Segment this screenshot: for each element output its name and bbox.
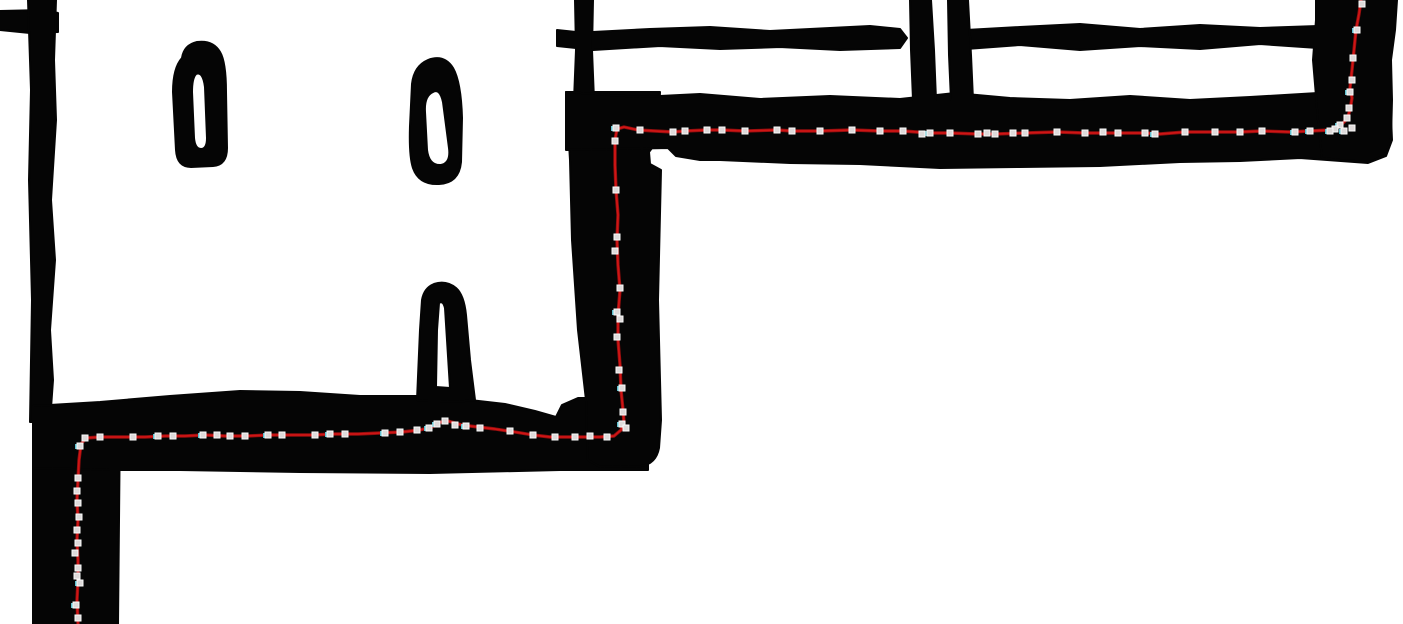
pillar-arch [417,283,475,402]
waypoint-marker[interactable] [1010,130,1016,136]
waypoint-marker[interactable] [463,423,469,429]
waypoint-marker[interactable] [617,316,623,322]
waypoint-marker[interactable] [227,433,233,439]
pillar-teardrop-1 [173,42,227,167]
waypoint-marker[interactable] [82,435,88,441]
waypoint-marker[interactable] [414,427,420,433]
waypoint-marker[interactable] [1327,128,1333,134]
pillar-teardrop-2 [410,58,462,184]
waypoint-marker[interactable] [97,434,103,440]
waypoint-marker[interactable] [312,432,318,438]
waypoint-marker[interactable] [613,125,619,131]
waypoint-marker[interactable] [242,433,248,439]
waypoint-marker[interactable] [342,431,348,437]
waypoint-marker[interactable] [130,434,136,440]
waypoint-marker[interactable] [617,285,623,291]
waypoint-marker[interactable] [1212,129,1218,135]
waypoint-marker[interactable] [434,421,440,427]
waypoint-marker[interactable] [984,130,990,136]
waypoint-marker[interactable] [587,433,593,439]
waypoint-marker[interactable] [74,488,80,494]
waypoint-marker[interactable] [1349,77,1355,83]
waypoint-marker[interactable] [72,550,78,556]
waypoint-marker[interactable] [73,602,79,608]
waypoint-marker[interactable] [849,127,855,133]
waypoint-marker[interactable] [670,129,676,135]
waypoint-marker[interactable] [170,433,176,439]
waypoint-marker[interactable] [452,422,458,428]
waypoint-marker[interactable] [1307,128,1313,134]
waypoint-marker[interactable] [279,432,285,438]
waypoint-marker[interactable] [1082,130,1088,136]
floorplan-sketch [0,0,1403,624]
waypoint-marker[interactable] [947,130,953,136]
wall-left-vertical [28,0,56,422]
wall-divider-b [948,0,973,100]
waypoint-marker[interactable] [623,425,629,431]
waypoint-marker[interactable] [900,128,906,134]
waypoint-marker[interactable] [75,540,81,546]
waypoint-marker[interactable] [975,131,981,137]
waypoint-marker[interactable] [1142,130,1148,136]
waypoint-marker[interactable] [75,500,81,506]
waypoint-marker[interactable] [507,428,513,434]
waypoint-marker[interactable] [1152,131,1158,137]
waypoint-marker[interactable] [74,573,80,579]
waypoint-marker[interactable] [1182,129,1188,135]
waypoint-marker[interactable] [619,385,625,391]
waypoint-marker[interactable] [75,475,81,481]
wall-room-stroke-left [593,26,907,50]
waypoint-marker[interactable] [604,434,610,440]
waypoint-marker[interactable] [1350,55,1356,61]
waypoint-marker[interactable] [789,128,795,134]
wall-central-top-stroke [574,0,594,100]
waypoint-marker[interactable] [1354,27,1360,33]
waypoint-marker[interactable] [614,234,620,240]
route-path [77,0,1361,624]
waypoint-marker[interactable] [1237,129,1243,135]
waypoint-marker[interactable] [919,131,925,137]
waypoint-marker[interactable] [75,615,81,621]
waypoint-marker[interactable] [1349,125,1355,131]
waypoint-marker[interactable] [74,527,80,533]
waypoint-marker[interactable] [77,443,83,449]
waypoint-marker[interactable] [572,434,578,440]
waypoint-marker[interactable] [1347,89,1353,95]
waypoint-marker[interactable] [75,565,81,571]
waypoint-marker[interactable] [76,514,82,520]
waypoint-marker[interactable] [616,367,622,373]
waypoint-marker[interactable] [719,127,725,133]
waypoint-marker[interactable] [1115,130,1121,136]
waypoint-marker[interactable] [397,429,403,435]
waypoint-marker[interactable] [426,425,432,431]
waypoint-marker[interactable] [612,138,618,144]
waypoint-marker[interactable] [552,434,558,440]
waypoint-marker[interactable] [1346,105,1352,111]
wall-lower-corridor [33,391,648,473]
waypoint-marker[interactable] [613,187,619,193]
waypoint-marker[interactable] [774,127,780,133]
waypoint-marker[interactable] [530,432,536,438]
waypoint-marker[interactable] [382,430,388,436]
waypoint-marker[interactable] [1359,1,1365,7]
waypoint-marker[interactable] [877,128,883,134]
waypoint-marker[interactable] [614,334,620,340]
waypoint-marker[interactable] [682,128,688,134]
wall-room-stroke-right [966,24,1318,50]
waypoint-marker[interactable] [1341,128,1347,134]
waypoint-marker[interactable] [327,431,333,437]
waypoint-marker[interactable] [704,127,710,133]
wall-divider-a [910,0,936,100]
waypoint-marker[interactable] [992,131,998,137]
waypoint-marker[interactable] [1292,129,1298,135]
waypoint-marker[interactable] [927,130,933,136]
waypoint-marker[interactable] [1054,129,1060,135]
waypoint-marker[interactable] [1259,128,1265,134]
waypoint-marker[interactable] [742,128,748,134]
waypoint-marker[interactable] [620,409,626,415]
waypoint-marker[interactable] [77,580,83,586]
waypoint-marker[interactable] [1344,115,1350,121]
waypoint-marker[interactable] [442,418,448,424]
floorplan-svg [0,0,1403,624]
waypoint-marker[interactable] [1022,130,1028,136]
waypoint-marker[interactable] [155,433,161,439]
waypoint-marker[interactable] [200,432,206,438]
waypoint-marker[interactable] [637,127,643,133]
waypoint-marker[interactable] [817,128,823,134]
waypoint-marker[interactable] [1100,129,1106,135]
waypoint-marker[interactable] [477,425,483,431]
waypoint-marker[interactable] [265,432,271,438]
route-path-underlay [77,0,1361,624]
wall-central-nub [557,30,576,48]
waypoint-marker[interactable] [612,248,618,254]
waypoint-marker[interactable] [214,432,220,438]
waypoint-marker[interactable] [614,309,620,315]
